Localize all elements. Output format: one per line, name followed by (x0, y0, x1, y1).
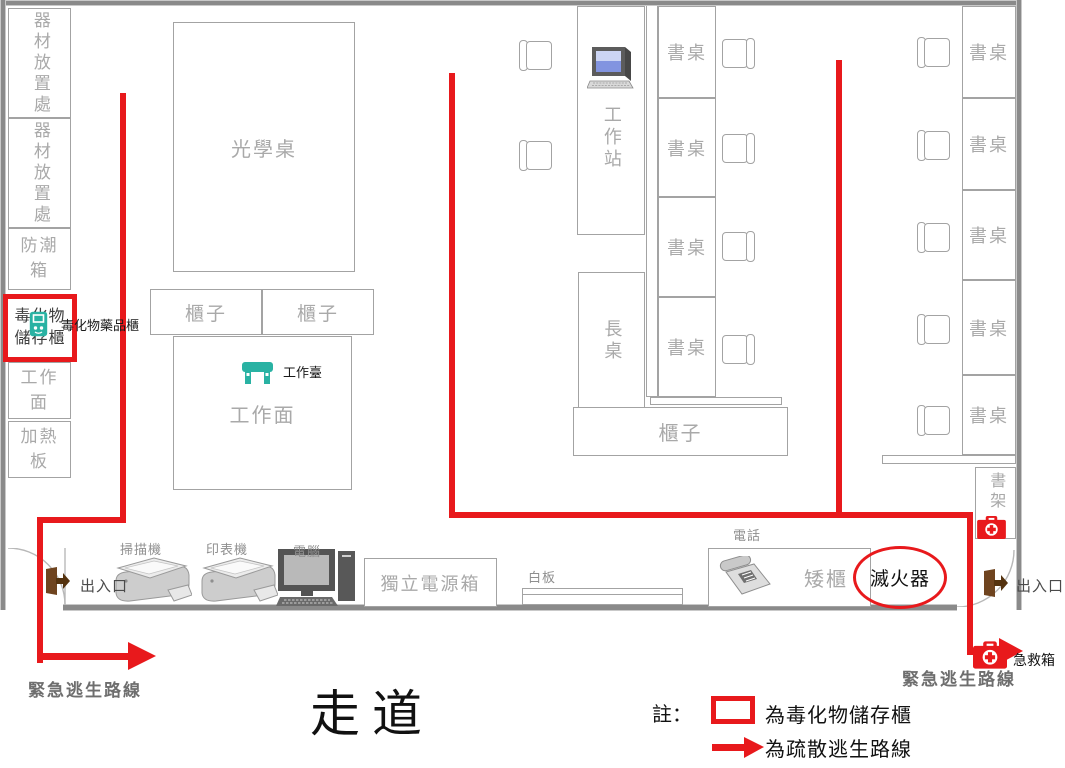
work-surface-center: 工作面 (173, 336, 352, 490)
desk-label: 書桌 (969, 131, 1009, 157)
exit-door-icon-left (44, 566, 70, 596)
heating-plate-label: 加熱板 (18, 425, 61, 474)
first-aid-label: 急救箱 (1013, 650, 1055, 670)
legend-arrowhead (744, 737, 764, 758)
cabinet-label: 櫃子 (185, 299, 227, 326)
chair (917, 405, 950, 436)
workstation: 工作站 (577, 6, 645, 235)
telephone-icon (718, 556, 774, 600)
whiteboard-label: 白板 (528, 567, 556, 586)
desk-label: 書桌 (969, 39, 1009, 65)
bookshelf-label: 書架 (987, 472, 1005, 512)
work-surface-left-label: 工作面 (18, 366, 61, 415)
toxic-cabinet-note: 毒化物藥品櫃 (61, 315, 139, 334)
desk-right-5: 書桌 (962, 375, 1016, 455)
escape-route-caption-left: 緊急逃生路線 (28, 676, 142, 701)
whiteboard-tray-line (523, 594, 682, 595)
escape-route-line (836, 60, 842, 518)
desk-label: 書桌 (667, 334, 707, 360)
exit-label-right: 出入口 (1016, 575, 1064, 596)
exit-door-icon-right (982, 568, 1008, 598)
equipment-storage-1: 器材放置處 (8, 8, 71, 118)
escape-route-line (449, 73, 455, 518)
desk-right-2: 書桌 (962, 98, 1016, 190)
escape-route-caption-right: 緊急逃生路線 (902, 665, 1016, 690)
power-box: 獨立電源箱 (364, 558, 497, 607)
desk-label: 書桌 (969, 402, 1009, 428)
escape-route-arrowhead (128, 642, 156, 670)
legend-toxic-rect (711, 696, 755, 724)
equipment-storage-2: 器材放置處 (8, 118, 71, 228)
shelf-mid (650, 397, 782, 405)
wall-right (1016, 0, 1022, 610)
work-surface-left: 工作面 (8, 362, 71, 419)
lab-floor-plan: 器材放置處 器材放置處 防潮箱 毒化物 儲存櫃 毒化物藥品櫃 工作面 加熱板 光… (0, 0, 1065, 768)
whiteboard (522, 588, 683, 605)
computer-label: 電腦 (293, 541, 321, 560)
first-aid-kit-icon (977, 516, 1006, 539)
desk-label: 書桌 (969, 222, 1009, 248)
chair (917, 130, 950, 161)
long-table: 長桌 (578, 272, 645, 410)
chair (917, 37, 950, 68)
fire-extinguisher-label: 滅火器 (870, 564, 930, 591)
corridor-label: 走道 (310, 674, 434, 746)
desk-right-3: 書桌 (962, 190, 1016, 280)
power-box-label: 獨立電源箱 (381, 570, 481, 596)
scanner-label: 掃描機 (120, 539, 162, 558)
desk-mid-1: 書桌 (658, 6, 716, 98)
moisture-proof-box-label: 防潮箱 (18, 234, 61, 283)
cabinet-label: 櫃子 (659, 417, 703, 446)
heating-plate: 加熱板 (8, 421, 71, 478)
work-surface-center-label: 工作面 (230, 399, 296, 428)
workbench-label: 工作臺 (283, 362, 322, 381)
long-table-label: 長桌 (602, 319, 622, 363)
desk-right-4: 書桌 (962, 280, 1016, 375)
optical-table-label: 光學桌 (231, 133, 297, 162)
workstation-label: 工作站 (601, 105, 621, 171)
desk-label: 書桌 (969, 315, 1009, 341)
desk-label: 書桌 (667, 39, 707, 65)
chair (519, 140, 552, 171)
escape-route-line (37, 517, 43, 663)
escape-route-line (967, 512, 973, 655)
escape-route-line (37, 517, 126, 523)
toxic-cabinet-icon (29, 311, 48, 337)
equipment-storage-label: 器材放置處 (30, 121, 49, 226)
desk-label: 書桌 (667, 234, 707, 260)
cabinet-center-2: 櫃子 (262, 289, 374, 335)
chair (917, 314, 950, 345)
workstation-computer-icon (587, 45, 635, 93)
desk-label: 書桌 (667, 135, 707, 161)
chair (722, 38, 755, 69)
cabinet-center-1: 櫃子 (150, 289, 262, 335)
desk-mid-2: 書桌 (658, 98, 716, 197)
escape-route-line (449, 512, 973, 518)
chair (722, 231, 755, 262)
cabinet-label: 櫃子 (297, 299, 339, 326)
equipment-storage-label: 器材放置處 (30, 11, 49, 116)
low-cabinet-label: 矮櫃 (804, 563, 848, 592)
legend-arrow-shaft (712, 744, 746, 751)
desk-right-1: 書桌 (962, 6, 1016, 98)
desk-mid-4: 書桌 (658, 297, 716, 397)
legend-route-text: 為疏散逃生路線 (765, 733, 912, 762)
chair (917, 222, 950, 253)
shelf-right (882, 455, 1016, 464)
legend-toxic-text: 為毒化物儲存櫃 (765, 699, 912, 728)
chair (722, 133, 755, 164)
escape-route-line (43, 653, 130, 660)
telephone-label: 電話 (733, 525, 761, 544)
partition-divider (646, 6, 658, 397)
chair (519, 40, 552, 71)
escape-route-line (120, 93, 126, 523)
workbench-icon (242, 361, 273, 384)
fire-extinguisher-circle: 滅火器 (853, 546, 947, 609)
cabinet-mid-bottom: 櫃子 (573, 407, 788, 456)
printer-label: 印表機 (206, 539, 248, 558)
optical-table: 光學桌 (173, 22, 355, 272)
exit-label-left: 出入口 (80, 575, 128, 596)
printer-icon (198, 551, 278, 608)
moisture-proof-box: 防潮箱 (8, 228, 71, 290)
desk-mid-3: 書桌 (658, 197, 716, 297)
wall-top (0, 0, 1022, 6)
legend-note: 註： (652, 698, 692, 727)
chair (722, 334, 755, 365)
